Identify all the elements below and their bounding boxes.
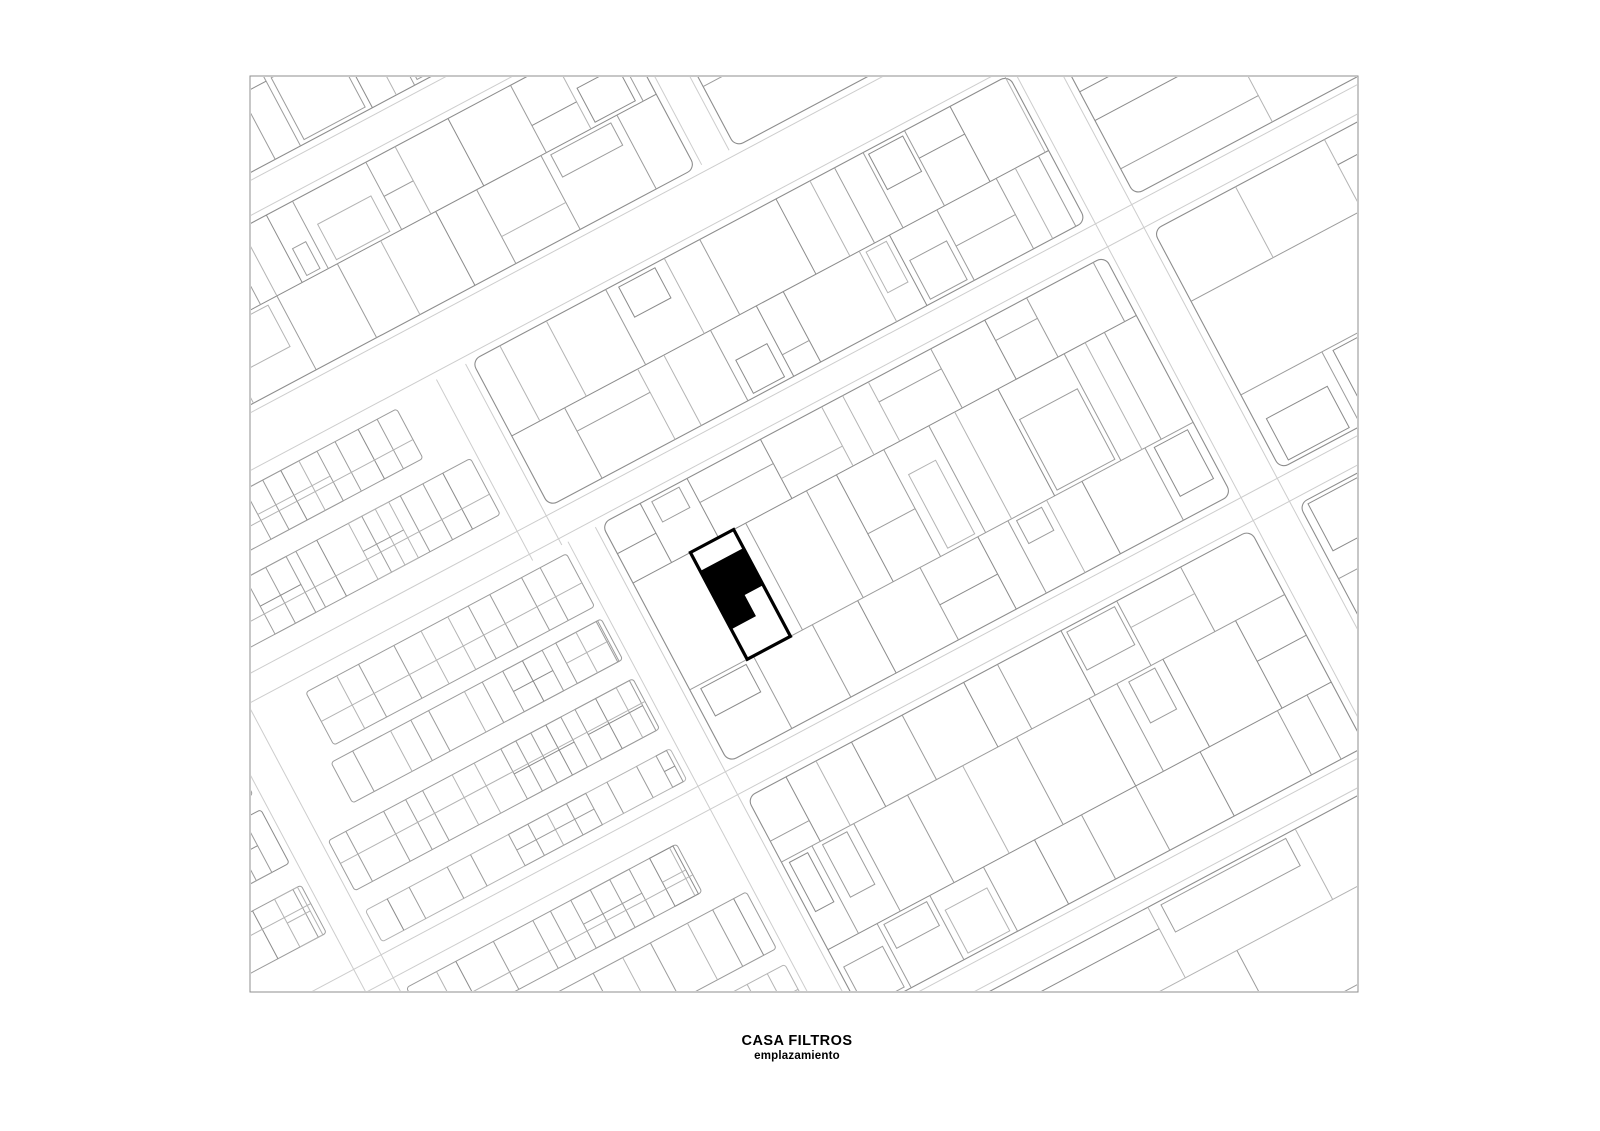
fabric-line: [1566, 685, 1600, 757]
fabric-line: [902, 715, 936, 780]
fabric-line: [565, 408, 602, 478]
fabric-line: [464, 692, 486, 733]
fabric-line: [260, 584, 301, 606]
parcel-outline: [881, 782, 1499, 1131]
parcel-outline: [55, 27, 695, 469]
fabric-line: [836, 475, 893, 582]
fabric-line: [822, 407, 853, 466]
fabric-line: [782, 340, 809, 354]
fabric-line: [1121, 96, 1259, 169]
fabric-line: [843, 396, 874, 455]
project-title: CASA FILTROS: [243, 1033, 1351, 1049]
parcel-outline: [1433, 613, 1600, 973]
fabric-line: [19, 166, 73, 268]
fabric-line: [812, 846, 859, 934]
fabric-line: [858, 601, 896, 673]
fabric-line: [151, 768, 234, 812]
fabric-line: [617, 115, 656, 189]
fabric-line: [687, 923, 717, 980]
parcel-outline: [201, 458, 500, 657]
fabric-line: [452, 775, 479, 825]
fabric-line: [956, 215, 1015, 247]
fabric-line: [0, 363, 25, 416]
fabric-line: [781, 594, 1284, 862]
parcel-outline: [823, 832, 875, 897]
parcel-outline: [747, 530, 1365, 1014]
parcel-outline: [0, 352, 46, 468]
parcel-outline: [734, 1119, 792, 1131]
fabric-line: [364, 1102, 379, 1110]
fabric-line: [518, 0, 572, 1]
fabric-line: [241, 229, 277, 296]
fabric-line: [384, 181, 413, 197]
fabric-line: [950, 106, 990, 181]
fabric-line: [1508, 753, 1600, 896]
fabric-line: [1081, 815, 1115, 879]
parcel-outline: [0, 0, 599, 372]
fabric-line: [1181, 567, 1215, 632]
fabric-line: [361, 0, 415, 85]
fabric-line: [1257, 635, 1306, 661]
fabric-line: [319, 1107, 341, 1131]
fabric-line: [1131, 594, 1195, 628]
fabric-line: [781, 446, 842, 479]
fabric-line: [863, 153, 903, 228]
fabric-line: [423, 484, 453, 540]
fabric-line: [603, 1075, 638, 1094]
fabric-line: [1034, 840, 1068, 904]
fabric-line: [201, 938, 226, 986]
fabric-line: [429, 711, 451, 752]
fabric-line: [1082, 481, 1120, 553]
fabric-line: [551, 0, 701, 165]
fabric-line: [225, 237, 261, 304]
fabric-line: [448, 119, 484, 186]
fabric-line: [806, 491, 863, 598]
fabric-line: [623, 958, 653, 1015]
fabric-line: [1493, 579, 1534, 656]
parcel-outline: [1154, 430, 1213, 497]
parcel-outline: [1266, 386, 1349, 460]
fabric-line: [384, 811, 411, 861]
fabric-line: [85, 130, 139, 232]
fabric-line: [337, 676, 365, 729]
parcel-outline: [660, 0, 978, 147]
parcel-outline: [98, 279, 172, 342]
fabric-line: [253, 911, 278, 959]
fabric-line: [1307, 695, 1341, 759]
fabric-line: [181, 440, 413, 564]
fabric-line: [268, 1065, 289, 1105]
fabric-line: [363, 530, 403, 551]
parcel-outline: [318, 196, 390, 260]
parcel-outline: [103, 737, 253, 858]
fabric-line: [756, 306, 793, 376]
fabric-line: [1117, 601, 1151, 666]
fabric-line: [932, 0, 964, 25]
title-block: CASA FILTROS emplazamiento: [243, 1033, 1351, 1063]
parcel-outline: [652, 487, 690, 522]
fabric-line: [637, 766, 654, 797]
fabric-line: [36, 604, 59, 647]
fabric-line: [1145, 448, 1183, 520]
parcel-outline: [88, 628, 168, 712]
fabric-line: [342, 0, 396, 95]
fabric-line: [1586, 447, 1600, 511]
fabric-line: [978, 537, 1016, 609]
fabric-line: [1402, 309, 1441, 383]
fabric-line: [266, 215, 302, 282]
fabric-line: [95, 81, 1419, 785]
fabric-line: [72, 319, 108, 386]
fabric-line: [466, 364, 562, 545]
fabric-line: [206, 745, 237, 803]
fabric-line: [1136, 786, 1170, 850]
parcel-outline: [1299, 361, 1600, 721]
parcel-outline: [884, 902, 939, 949]
fabric-line: [493, 941, 518, 989]
fabric-line: [703, 0, 946, 87]
fabric-line: [421, 631, 449, 684]
fabric-line: [1277, 711, 1311, 775]
fabric-line: [500, 346, 540, 421]
fabric-line: [188, 848, 216, 902]
fabric-line: [474, 763, 501, 813]
fabric-line: [12, 456, 36, 469]
parcel-outline: [394, 8, 470, 79]
fabric-line: [512, 150, 1049, 435]
fabric-line: [593, 973, 623, 1030]
fabric-line: [763, 0, 806, 32]
fabric-line: [877, 924, 911, 988]
fabric-line: [541, 156, 580, 230]
fabric-line: [1473, 411, 1513, 486]
fabric-line: [713, 910, 743, 967]
fabric-line: [1236, 187, 1274, 258]
fabric-line: [835, 168, 875, 243]
fabric-line: [293, 1121, 315, 1131]
parcel-outline: [331, 619, 623, 803]
fabric-line: [1200, 752, 1234, 816]
fabric-line: [482, 682, 504, 723]
parcel-outline: [306, 554, 595, 745]
fabric-line: [423, 791, 450, 841]
fabric-line: [1008, 521, 1046, 593]
parcel-outline: [909, 460, 975, 548]
fabric-line: [1148, 907, 1186, 978]
fabric-line: [889, 235, 926, 305]
parcel-outline: [472, 75, 1086, 506]
fabric-line: [1324, 140, 1362, 211]
fabric-line: [436, 379, 532, 560]
fabric-line: [1241, 252, 1510, 395]
fabric-line: [1061, 631, 1095, 696]
fabric-line: [296, 551, 326, 607]
fabric-line: [423, 0, 477, 52]
fabric-line: [168, 859, 196, 913]
fabric-line: [607, 782, 624, 813]
fabric-line: [920, 567, 958, 639]
fabric-line: [584, 893, 642, 924]
fabric-line: [406, 800, 433, 850]
fabric-line: [985, 320, 1016, 379]
parcel-outline: [1336, 0, 1380, 44]
plan-sheet: CASA FILTROS emplazamiento: [0, 0, 1600, 1131]
fabric-line: [1471, 685, 1600, 828]
fabric-line: [400, 496, 430, 552]
fabric-line: [1236, 621, 1283, 709]
fabric-line: [210, 525, 237, 540]
fabric-line: [192, 904, 311, 967]
fabric-line: [0, 189, 645, 1131]
parcel-outline: [1129, 668, 1177, 723]
fabric-line: [411, 720, 433, 761]
parcel-outline: [39, 626, 171, 738]
parcel-outline: [197, 500, 251, 564]
fabric-line: [997, 929, 1159, 1015]
fabric-line: [194, 73, 248, 175]
fabric-line: [482, 0, 536, 21]
parcel-outline: [278, 1079, 394, 1131]
fabric-line: [99, 570, 122, 613]
fabric-line: [54, 655, 156, 709]
fabric-line: [1377, 785, 1415, 856]
parcel-outline: [1057, 0, 1404, 195]
parcel-outline: [577, 67, 635, 122]
fabric-line: [786, 777, 820, 842]
fabric-line: [868, 509, 915, 534]
fabric-line: [0, 380, 32, 443]
fabric-line: [937, 210, 974, 280]
parcel-outline: [619, 268, 671, 317]
site-plan-map: [0, 0, 1600, 1131]
parcel-outline: [148, 355, 193, 404]
parcel-outline: [31, 153, 88, 234]
fabric-line: [550, 1089, 577, 1131]
fabric-line: [836, 16, 868, 76]
fabric-line: [1123, 1109, 1160, 1131]
fabric-line: [955, 412, 1012, 519]
fabric-line: [513, 671, 552, 692]
fabric-line: [828, 682, 1331, 950]
fabric-line: [241, 355, 1565, 1059]
fabric-line: [54, 672, 85, 730]
fabric-line: [0, 0, 1323, 604]
fabric-line: [810, 181, 850, 256]
parcel-outline: [1333, 318, 1418, 396]
fabric-line: [533, 920, 558, 968]
fabric-line: [983, 867, 1017, 931]
parcel-outline: [1020, 389, 1115, 490]
fabric-line: [997, 664, 1031, 729]
fabric-line: [770, 821, 809, 842]
fabric-line: [436, 211, 475, 285]
fabric-line: [664, 355, 701, 425]
fabric-line: [907, 795, 954, 883]
fabric-line: [996, 178, 1033, 248]
fabric-line: [851, 742, 885, 807]
fabric-line: [391, 731, 413, 772]
parcel-outline: [866, 241, 908, 292]
fabric-line: [241, 81, 266, 94]
fabric-line: [287, 911, 310, 923]
fabric-line: [904, 131, 944, 206]
fabric-line: [1209, 0, 1247, 40]
fabric-line: [470, 855, 487, 886]
fabric-line: [395, 147, 431, 214]
parcel-outline: [701, 664, 761, 716]
parcel-outline: [59, 569, 124, 635]
fabric-line: [19, 434, 44, 482]
fabric-line: [664, 766, 674, 772]
fabric-line: [588, 706, 642, 735]
fabric-line: [490, 594, 518, 647]
fabric-line: [527, 1101, 554, 1131]
fabric-line: [191, 355, 228, 375]
fabric-line: [816, 761, 850, 826]
fabric-line: [812, 625, 850, 697]
fabric-line: [963, 766, 1010, 854]
fabric-line: [221, 58, 275, 160]
fabric-line: [854, 824, 901, 912]
fabric-line: [468, 606, 496, 659]
fabric-line: [1064, 354, 1121, 461]
parcel-outline: [0, 354, 41, 433]
fabric-line: [477, 190, 516, 264]
fabric-line: [93, 307, 129, 374]
fabric-line: [540, 568, 568, 621]
parcel-outline: [142, 810, 290, 927]
parcel-outline: [671, 0, 781, 53]
fabric-line: [1005, 77, 1045, 152]
parcel-outline: [293, 242, 320, 276]
fabric-line: [387, 899, 404, 930]
parcel-outline: [864, 5, 953, 68]
fabric-line: [517, 809, 594, 850]
fabric-line: [1295, 829, 1333, 900]
fabric-line: [228, 332, 1552, 1036]
parcel-outline: [227, 305, 290, 368]
fabric-line: [638, 369, 675, 439]
fabric-line: [211, 508, 237, 558]
fabric-line: [103, 657, 153, 683]
fabric-line: [929, 426, 986, 533]
parcel-outline: [0, 432, 49, 492]
fabric-line: [1414, 856, 1455, 933]
fabric-line: [1085, 343, 1142, 450]
fabric-line: [1373, 500, 1600, 643]
fabric-line: [546, 321, 586, 396]
fabric-line: [522, 578, 550, 631]
fabric-line: [734, 899, 764, 956]
parcel-outline: [328, 679, 659, 891]
parcel-outline: [7, 567, 128, 662]
fabric-line: [177, 349, 216, 423]
fabric-line: [617, 533, 656, 554]
fabric-line: [448, 617, 476, 670]
fabric-line: [247, 44, 301, 146]
fabric-line: [381, 241, 420, 315]
fabric-line: [214, 329, 253, 403]
fabric-line: [71, 590, 113, 613]
fabric-line: [514, 742, 574, 774]
parcel-outline: [212, 819, 271, 889]
fabric-line: [456, 961, 481, 1009]
fabric-line: [879, 369, 941, 402]
fabric-line: [1367, 208, 1417, 302]
fabric-line: [174, 270, 242, 306]
fabric-line: [1015, 168, 1052, 238]
fabric-line: [1419, 536, 1453, 600]
parcel-outline: [249, 1012, 389, 1115]
fabric-line: [377, 419, 403, 469]
fabric-line: [189, 755, 220, 813]
parcel-outline: [346, 1126, 452, 1131]
fabric-line: [318, 6, 372, 108]
fabric-line: [1104, 332, 1161, 439]
fabric-line: [1233, 47, 1273, 122]
fabric-line: [221, 591, 251, 647]
fabric-line: [1080, 11, 1231, 92]
fabric-line: [931, 349, 962, 408]
fabric-line: [1509, 532, 1600, 612]
fabric-line: [607, 34, 643, 101]
fabric-line: [153, 774, 184, 832]
map-clip-group: [0, 0, 1600, 1131]
fabric-line: [884, 450, 941, 557]
fabric-line: [510, 85, 546, 152]
fabric-line: [919, 134, 965, 158]
fabric-line: [409, 887, 426, 918]
fabric-line: [749, 1127, 776, 1131]
fabric-line: [59, 144, 113, 246]
fabric-line: [1191, 158, 1460, 301]
fabric-line: [123, 636, 154, 694]
drawing-subtitle: emplazamiento: [243, 1050, 1351, 1063]
fabric-line: [710, 330, 747, 400]
fabric-line: [1495, 788, 1600, 874]
fabric-line: [224, 926, 249, 974]
fabric-line: [317, 540, 347, 596]
fabric-line: [550, 911, 575, 959]
fabric-line: [358, 429, 384, 479]
fabric-line: [291, 1105, 384, 1131]
fabric-line: [1017, 737, 1064, 825]
fabric-line: [760, 439, 791, 498]
parcel-outline: [844, 946, 904, 1007]
parcel-outline: [1533, 859, 1600, 965]
fabric-line: [1323, 0, 1363, 74]
fabric-line: [171, 764, 202, 822]
fabric-line: [1322, 352, 1361, 426]
fabric-line: [0, 372, 8, 425]
fabric-line: [436, 972, 461, 1020]
fabric-line: [1163, 659, 1210, 747]
fabric-line: [785, 1108, 812, 1131]
fabric-line: [447, 867, 464, 898]
parcel-outline: [389, 1083, 859, 1131]
fabric-line: [868, 382, 899, 441]
fabric-line: [353, 751, 375, 792]
fabric-line: [1027, 298, 1058, 357]
fabric-line: [1338, 112, 1436, 164]
fabric-line: [532, 102, 577, 126]
fabric-line: [577, 392, 650, 431]
parcel-outline: [271, 45, 365, 139]
parcel-outline: [1161, 838, 1300, 932]
parcel-outline: [182, 885, 327, 996]
fabric-line: [940, 574, 998, 605]
